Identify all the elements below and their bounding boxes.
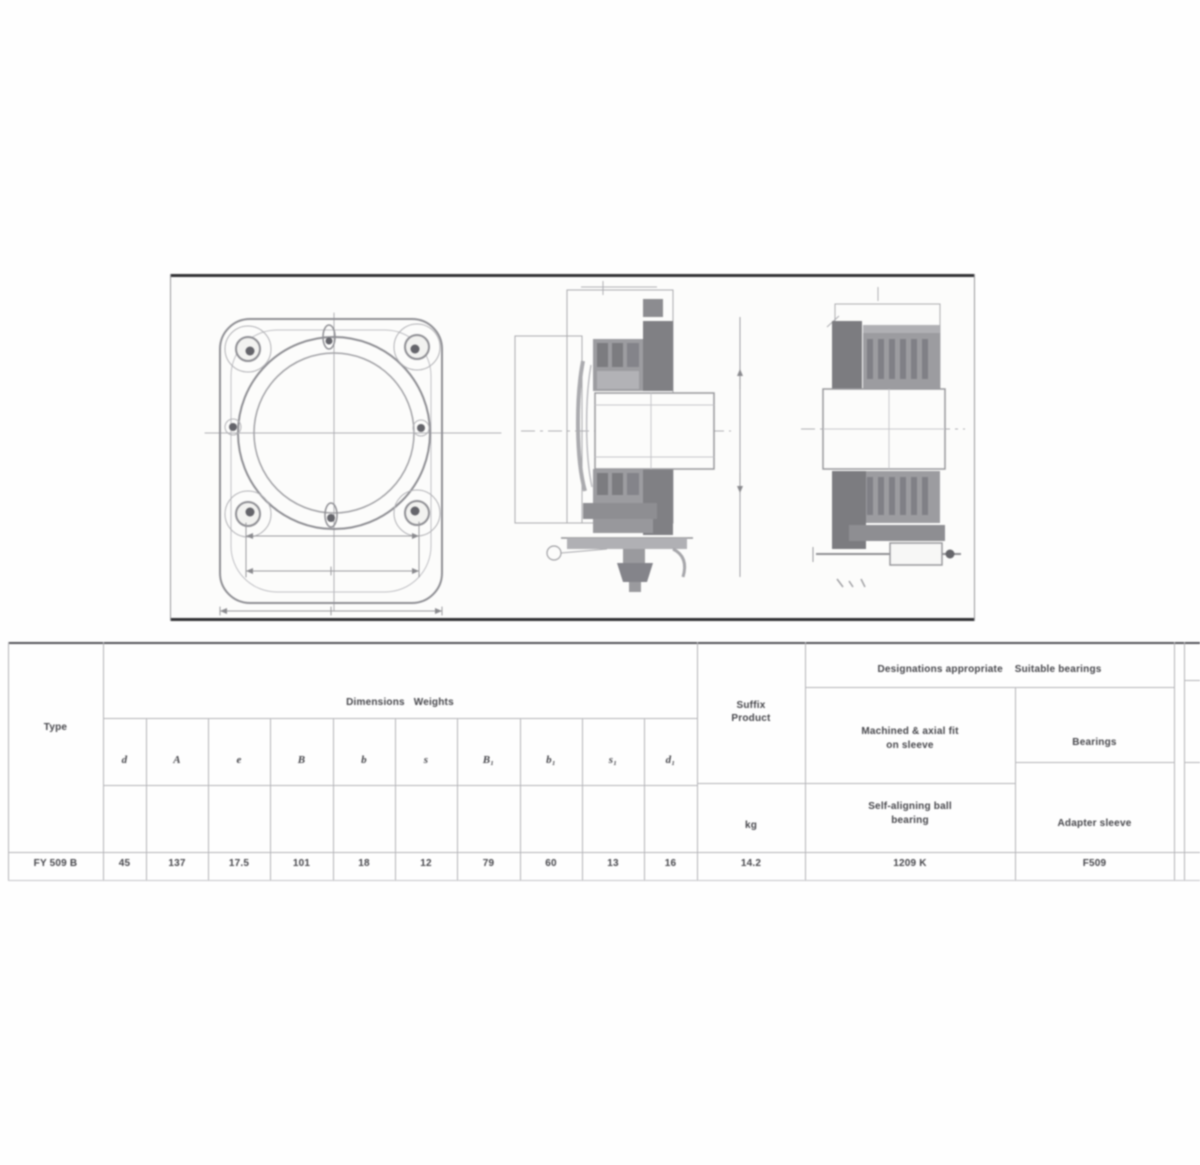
table-grid-line	[805, 687, 1174, 688]
table-grid-line	[8, 642, 9, 880]
dim-value-d: 45	[103, 858, 146, 870]
bearing-desc-line2: on sleeve	[805, 740, 1015, 752]
table-grid-line	[333, 718, 334, 880]
type-value: FY 509 B	[8, 858, 103, 870]
dim-value-b1: 60	[520, 858, 582, 870]
bearing-value: 1209 K	[805, 858, 1015, 870]
table-grid-line	[1184, 762, 1200, 763]
housing-name: Adapter sleeve	[1015, 818, 1174, 830]
dim-value-B: 101	[270, 858, 333, 870]
table-grid-line	[1015, 762, 1174, 763]
bearing-name-line2: bearing	[805, 815, 1015, 827]
flange-front-view	[205, 313, 501, 615]
table-grid-line	[520, 718, 521, 880]
grease-slot	[323, 325, 337, 527]
table-top-border	[8, 642, 1200, 644]
table-grid-line	[1015, 687, 1016, 880]
table-grid-line	[1184, 680, 1200, 681]
mass-column-header-line1: Suffix	[697, 700, 805, 712]
bolt-hole	[394, 490, 440, 536]
table-grid-line	[270, 718, 271, 880]
table-grid-line	[582, 718, 583, 880]
grease-nipple	[617, 563, 653, 582]
dim-col-header-d1: d₁	[644, 754, 697, 766]
dim-value-s1: 13	[582, 858, 644, 870]
adapter-sleeve-profile	[578, 361, 585, 491]
panel-right-border	[974, 274, 975, 621]
table-grid-line	[103, 718, 697, 719]
dim-col-header-s: s	[395, 754, 457, 766]
datasheet-page: Type Dimensions Weights d A e B b s B₁ b…	[0, 0, 1200, 1165]
table-grid-line	[1174, 642, 1175, 880]
dim-value-s: 12	[395, 858, 457, 870]
bearing-on-sleeve-section-view	[801, 287, 965, 587]
scanned-sheet: Type Dimensions Weights d A e B b s B₁ b…	[0, 0, 1200, 1165]
unit-cross-section-view	[515, 281, 740, 592]
bearing-desc-line1: Machined & axial fit	[805, 726, 1015, 738]
mass-unit-label: kg	[697, 820, 805, 832]
mass-column-header-line2: Product	[697, 713, 805, 725]
dimensions-group-header: Dimensions Weights	[103, 697, 697, 709]
table-grid-line	[208, 718, 209, 880]
dimension-lines	[220, 522, 442, 615]
shaft-section	[595, 393, 714, 469]
dim-col-header-A: A	[146, 754, 208, 766]
table-grid-line	[644, 718, 645, 880]
dim-value-e: 17.5	[208, 858, 270, 870]
dim-col-header-d: d	[103, 754, 146, 766]
table-bottom-border	[8, 880, 1200, 881]
base-plate-section	[567, 538, 687, 549]
dim-col-header-b1: b₁	[520, 754, 582, 766]
dim-value-B1: 79	[457, 858, 520, 870]
table-grid-line	[1184, 642, 1185, 880]
table-grid-line	[457, 718, 458, 880]
sleeve-section-upper	[832, 321, 862, 391]
bolt-hole	[225, 326, 271, 372]
bolt-hole	[394, 324, 440, 370]
type-column-header: Type	[8, 722, 103, 734]
table-grid-line	[8, 852, 1200, 853]
table-grid-line	[146, 718, 147, 880]
dim-col-header-B: B	[270, 754, 333, 766]
housing-desc: Bearings	[1015, 737, 1174, 749]
dim-col-header-B1: B₁	[457, 754, 520, 766]
bearing-name-line1: Self-aligning ball	[805, 801, 1015, 813]
table-grid-line	[103, 785, 697, 786]
table-grid-line	[395, 718, 396, 880]
mass-value: 14.2	[697, 858, 805, 870]
housing-section	[643, 299, 663, 317]
technical-drawing	[171, 277, 974, 618]
table-grid-line	[805, 642, 806, 880]
designations-group-header: Designations appropriate Suitable bearin…	[805, 664, 1174, 676]
table-grid-line	[697, 642, 698, 880]
dim-col-header-e: e	[208, 754, 270, 766]
dim-value-d1: 16	[644, 858, 697, 870]
dim-value-b: 18	[333, 858, 395, 870]
panel-bottom-border	[170, 618, 975, 621]
dim-col-header-b: b	[333, 754, 395, 766]
callout-balloon	[547, 546, 561, 560]
table-grid-line	[697, 783, 1015, 784]
dim-col-header-s1: s₁	[582, 754, 644, 766]
grease-nipple	[890, 543, 942, 565]
housing-value: F509	[1015, 858, 1174, 870]
dim-value-A: 137	[146, 858, 208, 870]
bolt-hole	[225, 491, 271, 537]
